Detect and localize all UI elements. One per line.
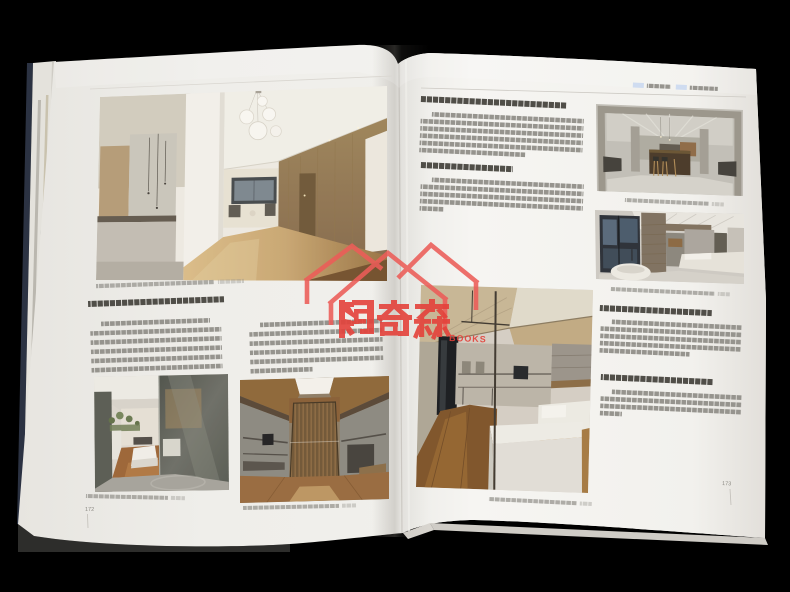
svg-text:BOOKS: BOOKS — [449, 333, 487, 344]
svg-text:173: 173 — [722, 481, 731, 487]
svg-text:172: 172 — [85, 507, 94, 513]
